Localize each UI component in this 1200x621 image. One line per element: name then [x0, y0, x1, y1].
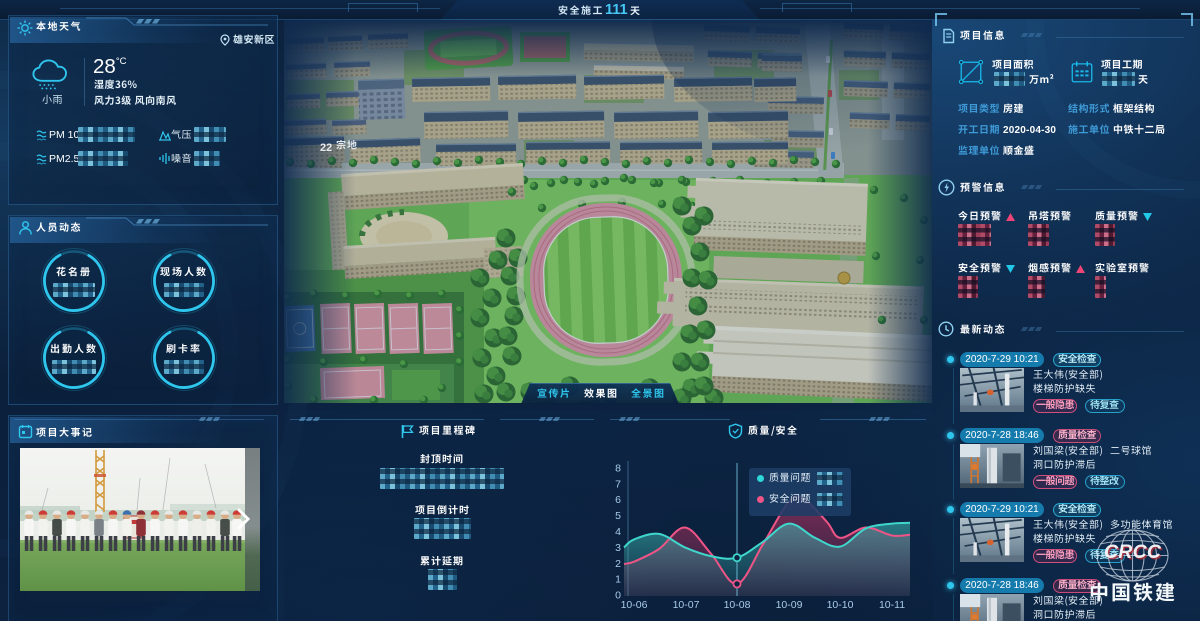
svg-text:10-11: 10-11	[879, 599, 905, 611]
svg-text:10-08: 10-08	[724, 599, 751, 611]
svg-text:10-06: 10-06	[621, 599, 648, 611]
svg-text:3: 3	[615, 542, 621, 554]
svg-text:10-09: 10-09	[776, 599, 803, 611]
svg-text:1: 1	[615, 574, 621, 586]
svg-text:10-07: 10-07	[673, 599, 700, 611]
svg-text:2: 2	[615, 558, 621, 570]
svg-text:10-10: 10-10	[827, 599, 854, 611]
svg-text:7: 7	[615, 478, 621, 490]
svg-text:5: 5	[615, 510, 621, 522]
svg-text:8: 8	[615, 463, 621, 475]
svg-text:4: 4	[615, 526, 621, 538]
svg-text:6: 6	[615, 494, 621, 506]
